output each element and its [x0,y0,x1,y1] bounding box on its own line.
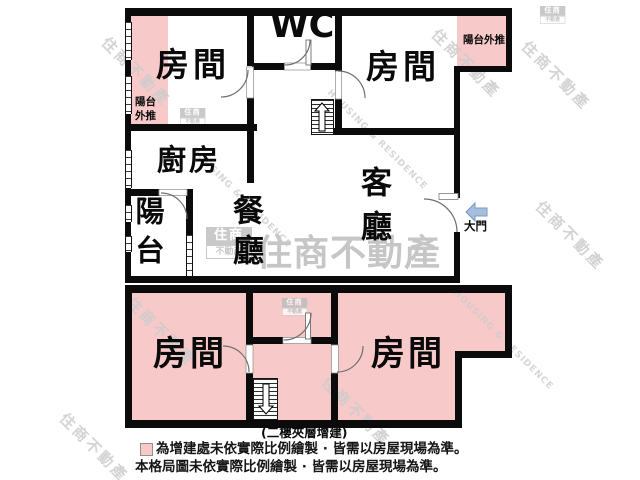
room-label-dining: 餐廳 [229,194,260,274]
legend-pink-swatch [140,443,153,456]
floorplan-canvas: 住商不動產 住商不動產 住商不動產 HOUSING & RESIDENCE HO… [0,0,640,480]
room-label-bedroom-lower-right: 房間 [371,337,445,371]
room-label-balcony: 陽台 [133,196,162,274]
room-label-bedroom-top-left: 房間 [156,48,230,81]
door-mezzanine-landing [283,313,311,344]
label-pushout-top-right: 陽台外推 [463,35,505,46]
mezzanine-caption: (二樓夾層增建) [261,427,347,440]
legend-line-1: 為增建處未依實際比例繪製 · 皆需以房屋現場為準。 [156,443,468,457]
stairs-down-arrow-icon [259,384,273,414]
doors-overlay [0,0,640,480]
label-pushout-left: 陽台外推 [135,96,159,123]
door-bedroom-lower-left [223,345,253,373]
room-label-living: 客廳 [357,166,388,254]
room-label-kitchen: 廚房 [157,146,221,175]
room-label-bedroom-top-right: 房間 [366,50,440,83]
label-main-door: 大門 [464,221,487,233]
door-bedroom-lower-right [332,345,364,373]
room-label-bedroom-lower-left: 房間 [153,337,227,371]
legend-line-2: 本格局圖未依實際比例繪製 · 皆需以房屋現場為準。 [135,461,447,475]
room-label-wc: WC [270,9,334,44]
door-main-entrance [424,194,458,233]
stairs-up-arrow-icon [315,103,329,131]
door-bedroom-top-right [336,71,366,99]
